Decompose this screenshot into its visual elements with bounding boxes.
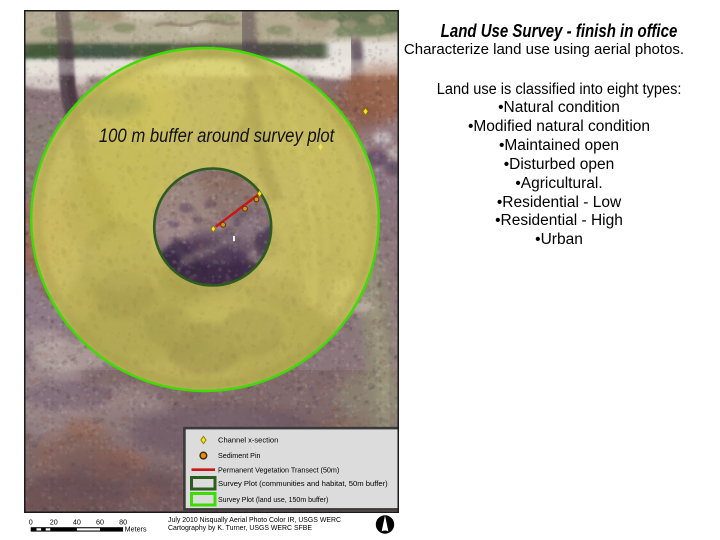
svg-text:100 m buffer around survey plo: 100 m buffer around survey plot xyxy=(99,126,335,147)
svg-text:Permanent Vegetation Transect: Permanent Vegetation Transect (50m) xyxy=(218,465,339,474)
svg-text:Sediment Pin: Sediment Pin xyxy=(218,451,261,460)
svg-text:Channel x-section: Channel x-section xyxy=(218,436,278,445)
svg-text:Survey Plot (land use, 150m bu: Survey Plot (land use, 150m buffer) xyxy=(218,495,328,504)
svg-text:Survey Plot (communities and h: Survey Plot (communities and habitat, 50… xyxy=(218,479,388,488)
svg-text:20: 20 xyxy=(50,518,58,527)
svg-text:0: 0 xyxy=(29,518,33,527)
svg-text:Meters: Meters xyxy=(125,525,147,534)
svg-text:40: 40 xyxy=(73,518,81,527)
svg-text:60: 60 xyxy=(96,518,104,527)
